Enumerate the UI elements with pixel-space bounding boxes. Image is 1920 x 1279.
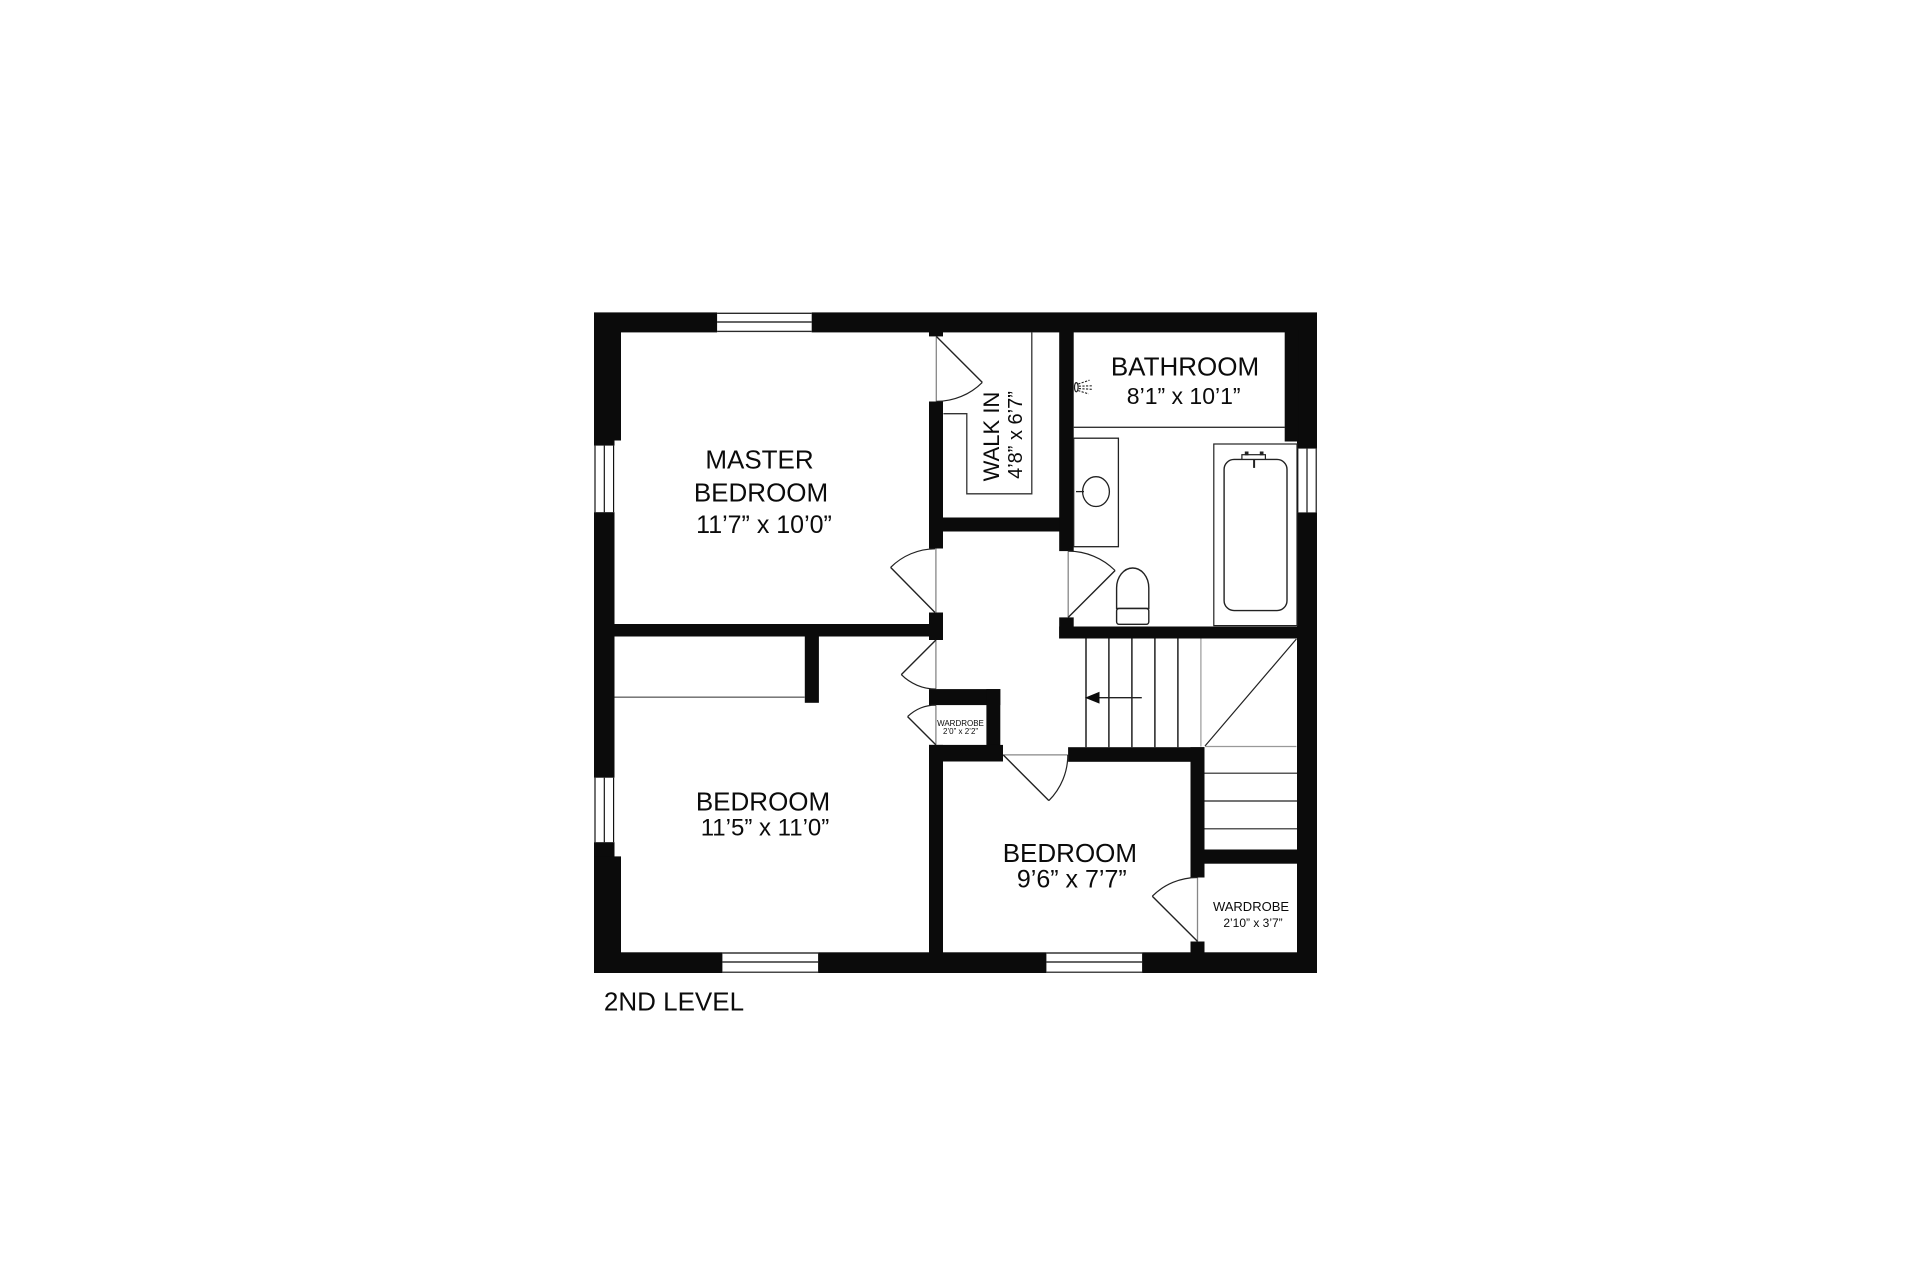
svg-text:WALK IN: WALK IN <box>979 392 1004 482</box>
svg-text:BEDROOM: BEDROOM <box>1003 838 1137 868</box>
svg-text:8’1” x 10’1”: 8’1” x 10’1” <box>1127 383 1241 409</box>
svg-text:2’10” x 3’7”: 2’10” x 3’7” <box>1223 916 1282 930</box>
svg-text:9’6” x 7’7”: 9’6” x 7’7” <box>1017 865 1127 893</box>
svg-text:BEDROOM: BEDROOM <box>694 478 828 508</box>
svg-text:11’7” x 10’0”: 11’7” x 10’0” <box>696 511 832 539</box>
svg-text:2ND LEVEL: 2ND LEVEL <box>604 987 744 1017</box>
svg-text:BATHROOM: BATHROOM <box>1111 351 1259 381</box>
svg-text:MASTER: MASTER <box>705 445 813 475</box>
svg-text:WARDROBE: WARDROBE <box>1213 899 1289 914</box>
svg-text:2’0” x 2’2”: 2’0” x 2’2” <box>943 727 978 736</box>
svg-text:4’8” x 6’7”: 4’8” x 6’7” <box>1005 391 1027 479</box>
svg-text:BEDROOM: BEDROOM <box>696 787 830 817</box>
svg-text:11’5” x 11’0”: 11’5” x 11’0” <box>701 815 830 842</box>
